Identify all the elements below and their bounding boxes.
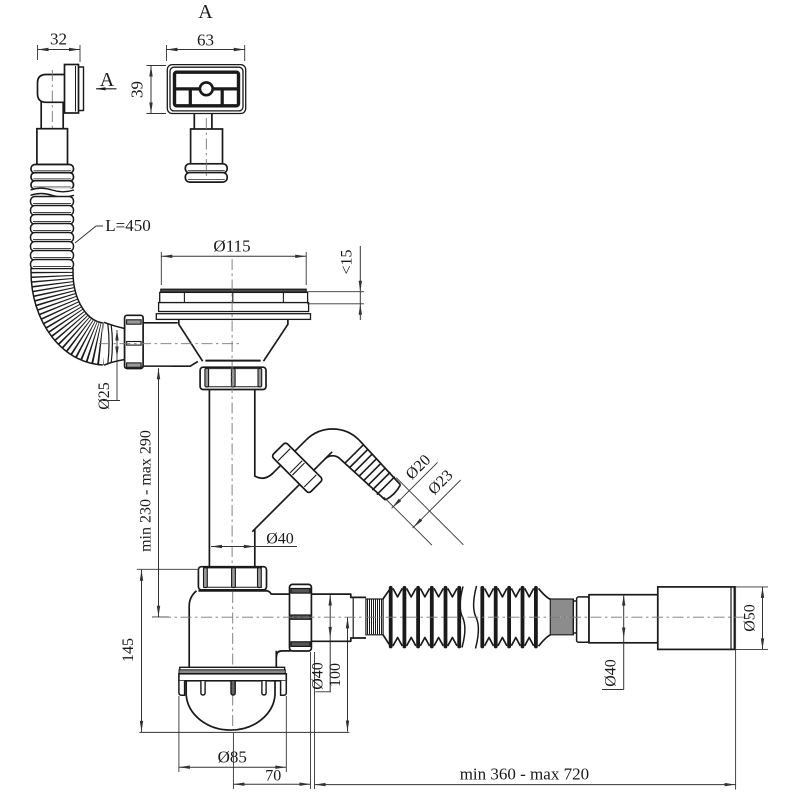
svg-text:min 360 - max 720: min 360 - max 720: [460, 765, 589, 784]
svg-text:<15: <15: [339, 249, 356, 274]
svg-text:70: 70: [265, 767, 281, 784]
svg-text:Ø25: Ø25: [96, 382, 113, 410]
svg-text:39: 39: [128, 81, 147, 98]
svg-text:Ø40: Ø40: [602, 659, 619, 687]
svg-text:Ø40: Ø40: [266, 531, 294, 548]
svg-text:100: 100: [327, 663, 344, 687]
svg-text:32: 32: [50, 30, 67, 49]
svg-text:Ø40: Ø40: [309, 662, 326, 690]
svg-text:Ø85: Ø85: [218, 748, 247, 767]
svg-text:A: A: [100, 69, 115, 91]
svg-text:63: 63: [197, 31, 214, 50]
svg-text:Ø115: Ø115: [213, 237, 250, 256]
svg-text:A: A: [198, 1, 213, 23]
svg-text:145: 145: [120, 638, 137, 662]
svg-text:L=450: L=450: [105, 216, 150, 235]
svg-text:Ø50: Ø50: [742, 604, 759, 632]
svg-text:min 230 - max 290: min 230 - max 290: [137, 430, 154, 552]
